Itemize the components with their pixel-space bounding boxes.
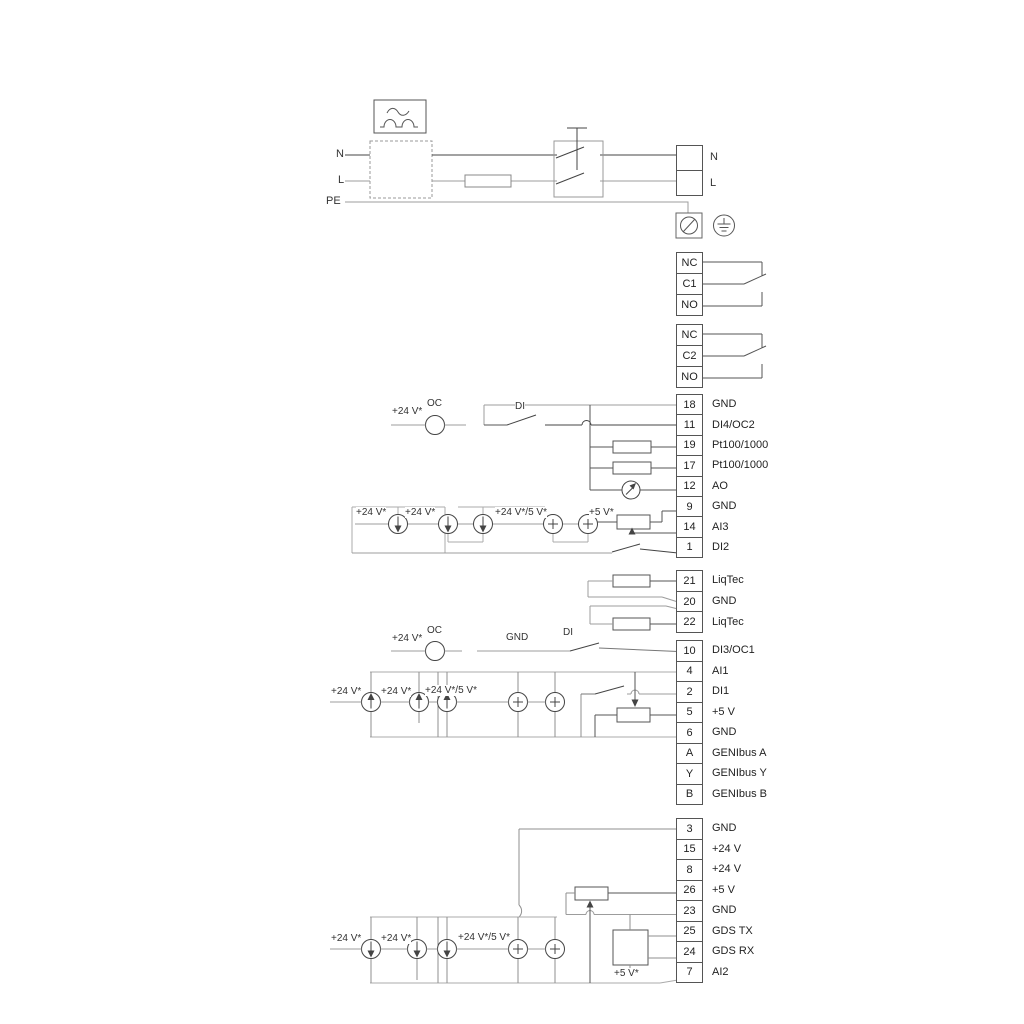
open-collector-symbol-2 bbox=[426, 642, 445, 661]
terminal-cell: C2 bbox=[676, 345, 703, 367]
terminal-id: 2 bbox=[686, 686, 692, 698]
potentiometer-ai3 bbox=[617, 515, 650, 529]
terminal-label: GND bbox=[712, 900, 754, 921]
relay2-contact bbox=[702, 334, 766, 378]
terminal-id: 10 bbox=[683, 645, 695, 657]
terminal-id: 8 bbox=[686, 864, 692, 876]
terminal-label: DI3/OC1 bbox=[712, 640, 767, 661]
terminal-label: AI3 bbox=[712, 516, 768, 536]
pt100-resistor-2 bbox=[613, 462, 651, 474]
power-terminal-block bbox=[676, 145, 703, 196]
terminal-group-c: 10 4 2 5 6 A Y B DI3/OC1 AI1 DI1 +5 V GN… bbox=[676, 640, 767, 805]
relay1-terminal-block: NC C1 NO bbox=[676, 252, 703, 316]
terminal-label: GND bbox=[712, 591, 744, 612]
switch-blades bbox=[556, 147, 584, 184]
label-plus24v-5v: +24 V*/5 V* bbox=[495, 507, 547, 518]
potentiometer-ai1 bbox=[617, 708, 650, 722]
liqtec-resistor-1 bbox=[613, 575, 650, 587]
wiper-arrow-ai1 bbox=[632, 700, 639, 708]
terminal-id: 7 bbox=[686, 966, 692, 978]
terminal-label: DI4/OC2 bbox=[712, 414, 768, 434]
terminal-label: LiqTec bbox=[712, 611, 744, 632]
label-plus24v: +24 V* bbox=[381, 933, 411, 944]
di1-switch-blade bbox=[595, 686, 624, 694]
wire-jog bbox=[519, 905, 522, 917]
relay2-terminal-block: NC C2 NO bbox=[676, 324, 703, 388]
terminal-cell: 11 bbox=[676, 414, 703, 435]
label-plus24v: +24 V* bbox=[331, 933, 361, 944]
terminal-cell: 12 bbox=[676, 476, 703, 497]
terminal-id: 4 bbox=[686, 665, 692, 677]
terminal-cell bbox=[676, 145, 703, 171]
terminal-label: GDS RX bbox=[712, 941, 754, 962]
terminal-id: NC bbox=[682, 257, 698, 269]
relay1-blade bbox=[744, 274, 766, 284]
label-oc: OC bbox=[427, 625, 442, 636]
terminal-id: 3 bbox=[686, 823, 692, 835]
terminal-label: AI1 bbox=[712, 661, 767, 682]
sine-icon bbox=[387, 108, 409, 115]
terminal-id: 25 bbox=[683, 925, 695, 937]
label-plus24v: +24 V* bbox=[356, 507, 386, 518]
terminal-label: DI2 bbox=[712, 537, 768, 557]
label-l-right: L bbox=[710, 177, 716, 189]
label-l-left: L bbox=[338, 174, 344, 186]
terminal-cell: NO bbox=[676, 294, 703, 316]
terminal-cell: 19 bbox=[676, 435, 703, 456]
pt100-resistor-1 bbox=[613, 441, 651, 453]
potentiometer-ai2 bbox=[575, 887, 608, 900]
terminal-cell: 3 bbox=[676, 818, 703, 840]
terminal-id: Y bbox=[686, 768, 693, 780]
terminal-id: 26 bbox=[683, 884, 695, 896]
terminal-label: +24 V bbox=[712, 859, 754, 880]
terminal-label: GND bbox=[712, 496, 768, 516]
terminal-cell: 25 bbox=[676, 921, 703, 943]
terminal-cell: 5 bbox=[676, 702, 703, 724]
terminal-label: +5 V bbox=[712, 702, 767, 723]
terminal-id: 24 bbox=[683, 946, 695, 958]
terminal-id: 20 bbox=[683, 596, 695, 608]
terminal-id: 18 bbox=[683, 399, 695, 411]
terminal-label: +5 V bbox=[712, 880, 754, 901]
terminal-label: GENIbus B bbox=[712, 784, 767, 805]
label-plus24v-5v: +24 V*/5 V* bbox=[458, 932, 510, 943]
terminal-label: GDS TX bbox=[712, 921, 754, 942]
gds-sensor-box bbox=[613, 930, 648, 965]
terminal-label: GND bbox=[712, 394, 768, 414]
label-pe: PE bbox=[326, 195, 341, 207]
wave-icon bbox=[380, 120, 418, 127]
terminal-id: 22 bbox=[683, 616, 695, 628]
terminal-cell: 20 bbox=[676, 591, 703, 613]
terminal-cell: C1 bbox=[676, 273, 703, 295]
terminal-id: 11 bbox=[684, 419, 695, 431]
terminal-label: AO bbox=[712, 476, 768, 496]
io-section-a bbox=[391, 405, 678, 499]
label-plus5v: +5 V* bbox=[614, 968, 639, 979]
terminal-id: 1 bbox=[686, 541, 692, 553]
terminal-label: GND bbox=[712, 818, 754, 839]
fuse-symbol bbox=[465, 175, 511, 187]
terminal-id: 12 bbox=[683, 480, 695, 492]
switch-actuator bbox=[567, 128, 587, 170]
liqtec-section bbox=[588, 575, 678, 630]
relay1-contact bbox=[702, 262, 766, 306]
terminal-label: LiqTec bbox=[712, 570, 744, 591]
label-oc: OC bbox=[427, 398, 442, 409]
terminal-cell: 7 bbox=[676, 962, 703, 984]
label-plus24v: +24 V* bbox=[331, 686, 361, 697]
terminal-cell: NC bbox=[676, 252, 703, 274]
terminal-group-b: 21 20 22 LiqTec GND LiqTec bbox=[676, 570, 744, 633]
terminal-id: 19 bbox=[683, 439, 695, 451]
terminal-label: DI1 bbox=[712, 681, 767, 702]
terminal-label: +24 V bbox=[712, 839, 754, 860]
terminal-group-d: 3 15 8 26 23 25 24 7 GND +24 V +24 V +5 … bbox=[676, 818, 754, 983]
terminal-id: 6 bbox=[686, 727, 692, 739]
liqtec-resistor-2 bbox=[613, 618, 650, 630]
terminal-id: 14 bbox=[683, 521, 695, 533]
terminal-group-a: 18 11 19 17 12 9 14 1 GND DI4/OC2 Pt100/… bbox=[676, 394, 768, 558]
terminal-id: 17 bbox=[683, 460, 695, 472]
terminal-cell: A bbox=[676, 743, 703, 765]
pe-wire bbox=[345, 202, 688, 213]
terminal-cell: 15 bbox=[676, 839, 703, 861]
terminal-cell: 18 bbox=[676, 394, 703, 415]
terminal-cell: Y bbox=[676, 763, 703, 785]
terminal-cell: 23 bbox=[676, 900, 703, 922]
terminal-cell: NC bbox=[676, 324, 703, 346]
terminal-id: 15 bbox=[683, 843, 695, 855]
terminal-id: NO bbox=[681, 371, 698, 383]
terminal-id: NC bbox=[682, 329, 698, 341]
ai2-section bbox=[330, 829, 678, 983]
label-plus24v-5v: +24 V*/5 V* bbox=[425, 685, 477, 696]
wiper-arrow-ai2 bbox=[587, 901, 594, 908]
terminal-cell: NO bbox=[676, 366, 703, 388]
label-plus24v: +24 V* bbox=[405, 507, 435, 518]
terminal-id: NO bbox=[681, 299, 698, 311]
terminal-cell: 8 bbox=[676, 859, 703, 881]
terminal-id: 21 bbox=[683, 575, 695, 587]
filter-box bbox=[370, 141, 432, 198]
di2-switch-blade bbox=[612, 544, 640, 552]
label-gnd: GND bbox=[506, 632, 528, 643]
terminal-label: GND bbox=[712, 722, 767, 743]
terminal-id: 23 bbox=[683, 905, 695, 917]
terminal-cell: 26 bbox=[676, 880, 703, 902]
ai1-section bbox=[330, 672, 678, 737]
terminal-cell bbox=[676, 170, 703, 196]
relay2-blade bbox=[744, 346, 766, 356]
label-n-left: N bbox=[336, 148, 344, 160]
di3-switch-blade bbox=[570, 643, 599, 651]
terminal-cell: 22 bbox=[676, 611, 703, 633]
label-plus5v: +5 V* bbox=[589, 507, 614, 518]
terminal-label: GENIbus A bbox=[712, 743, 767, 764]
label-plus24v: +24 V* bbox=[392, 633, 422, 644]
label-n-right: N bbox=[710, 151, 718, 163]
terminal-id: B bbox=[686, 788, 693, 800]
terminal-cell: 2 bbox=[676, 681, 703, 703]
terminal-cell: B bbox=[676, 784, 703, 806]
open-collector-symbol bbox=[426, 416, 445, 435]
terminal-cell: 9 bbox=[676, 496, 703, 517]
di3-section bbox=[391, 642, 678, 661]
label-plus24v: +24 V* bbox=[392, 406, 422, 417]
wiring-diagram-page: N L PE N L NC C1 NO NC C2 NO 18 11 19 17 bbox=[0, 0, 1024, 1024]
terminal-cell: 21 bbox=[676, 570, 703, 592]
terminal-cell: 6 bbox=[676, 722, 703, 744]
terminal-cell: 4 bbox=[676, 661, 703, 683]
terminal-cell: 24 bbox=[676, 941, 703, 963]
label-plus24v: +24 V* bbox=[381, 686, 411, 697]
label-di: DI bbox=[515, 401, 525, 412]
mains-symbol-box bbox=[374, 100, 426, 133]
terminal-cell: 1 bbox=[676, 537, 703, 558]
label-di: DI bbox=[563, 627, 573, 638]
terminal-label: Pt100/1000 bbox=[712, 455, 768, 475]
terminal-cell: 17 bbox=[676, 455, 703, 476]
terminal-id: A bbox=[686, 747, 693, 759]
terminal-id: C2 bbox=[682, 350, 696, 362]
terminal-id: C1 bbox=[682, 278, 696, 290]
terminal-label: GENIbus Y bbox=[712, 763, 767, 784]
terminal-label: Pt100/1000 bbox=[712, 435, 768, 455]
terminal-cell: 10 bbox=[676, 640, 703, 662]
terminal-cell: 14 bbox=[676, 516, 703, 537]
terminal-label: AI2 bbox=[712, 962, 754, 983]
terminal-id: 9 bbox=[686, 501, 692, 513]
terminal-id: 5 bbox=[686, 706, 692, 718]
di4-switch-blade bbox=[507, 415, 536, 425]
